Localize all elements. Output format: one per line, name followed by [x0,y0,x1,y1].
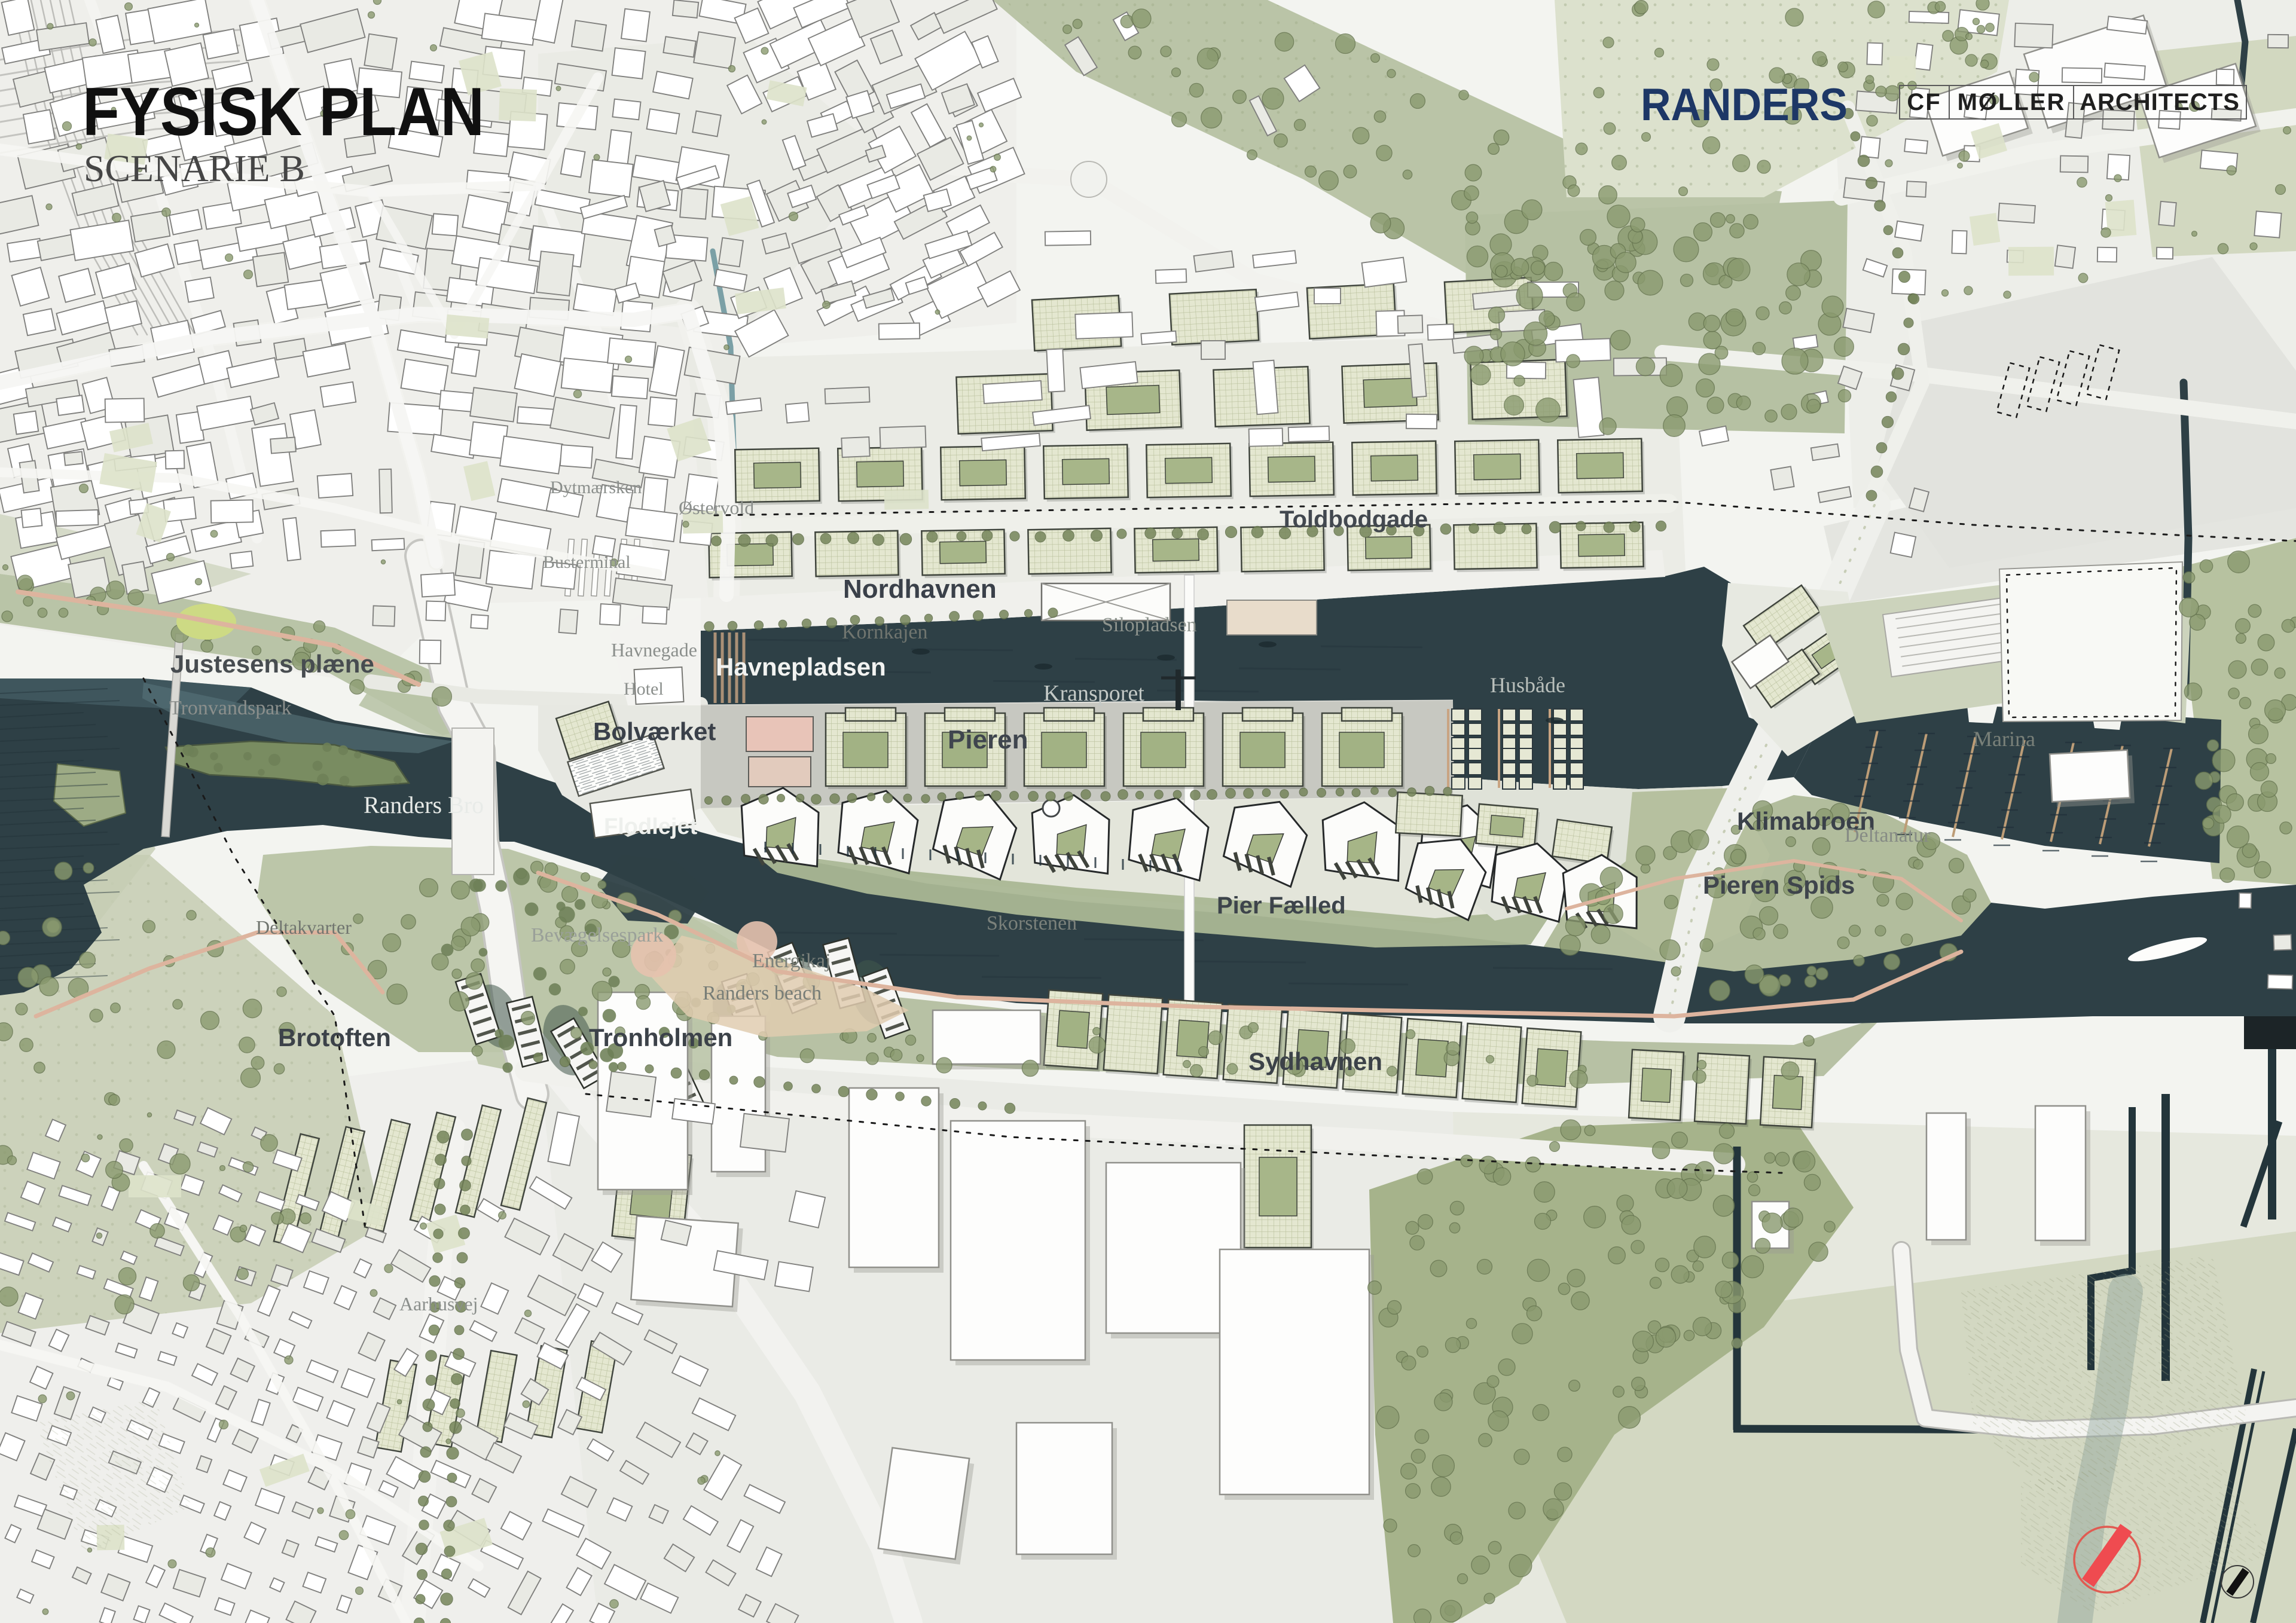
svg-text:Flodlejet: Flodlejet [604,814,698,839]
svg-text:Aarhusvej: Aarhusvej [399,1293,478,1315]
svg-text:FYSISK PLAN: FYSISK PLAN [83,74,484,150]
svg-text:Pier Fælled: Pier Fælled [1217,893,1346,919]
svg-text:Husbåde: Husbåde [1490,673,1565,697]
svg-text:Nordhavnen: Nordhavnen [843,574,997,604]
svg-text:Bevægelsespark: Bevægelsespark [531,924,663,946]
svg-text:Deltakvarter: Deltakvarter [256,916,352,938]
svg-text:Bolværket: Bolværket [593,717,716,745]
svg-text:CF: CF [1907,89,1941,115]
svg-text:Havnegade: Havnegade [611,639,697,661]
svg-text:SCENARIE B: SCENARIE B [84,147,305,189]
svg-text:Tronholmen: Tronholmen [589,1023,732,1052]
svg-text:Justesens plæne: Justesens plæne [170,650,374,678]
svg-text:RANDERS: RANDERS [1641,80,1848,130]
svg-text:Tronvandspark: Tronvandspark [169,697,292,719]
svg-text:Pieren Spids: Pieren Spids [1703,871,1855,899]
svg-text:Sydhavnen: Sydhavnen [1248,1047,1382,1075]
svg-text:ARCHITECTS: ARCHITECTS [2080,89,2240,115]
svg-text:Kransporet: Kransporet [1043,681,1144,706]
svg-text:Havnepladsen: Havnepladsen [716,653,886,681]
svg-text:Brotoften: Brotoften [278,1023,391,1052]
svg-text:Pieren: Pieren [948,725,1028,754]
svg-text:Marina: Marina [1973,727,2035,751]
svg-text:Busterminal: Busterminal [543,552,631,572]
svg-text:Randers beach: Randers beach [703,982,822,1004]
svg-text:Dytmærsken: Dytmærsken [550,478,642,497]
svg-text:Hotel: Hotel [624,679,664,699]
svg-text:Østervold: Østervold [679,497,754,518]
svg-text:Randers Bro: Randers Bro [364,791,484,818]
svg-text:MØLLER: MØLLER [1958,89,2066,115]
svg-text:Energikaj: Energikaj [752,950,831,972]
svg-text:Deltanatur: Deltanatur [1845,824,1931,846]
svg-text:Skorstenen: Skorstenen [987,912,1077,934]
svg-text:Silopladsen: Silopladsen [1102,614,1197,636]
svg-text:Toldbodgade: Toldbodgade [1280,506,1428,533]
svg-text:Kornkajen: Kornkajen [842,621,928,643]
